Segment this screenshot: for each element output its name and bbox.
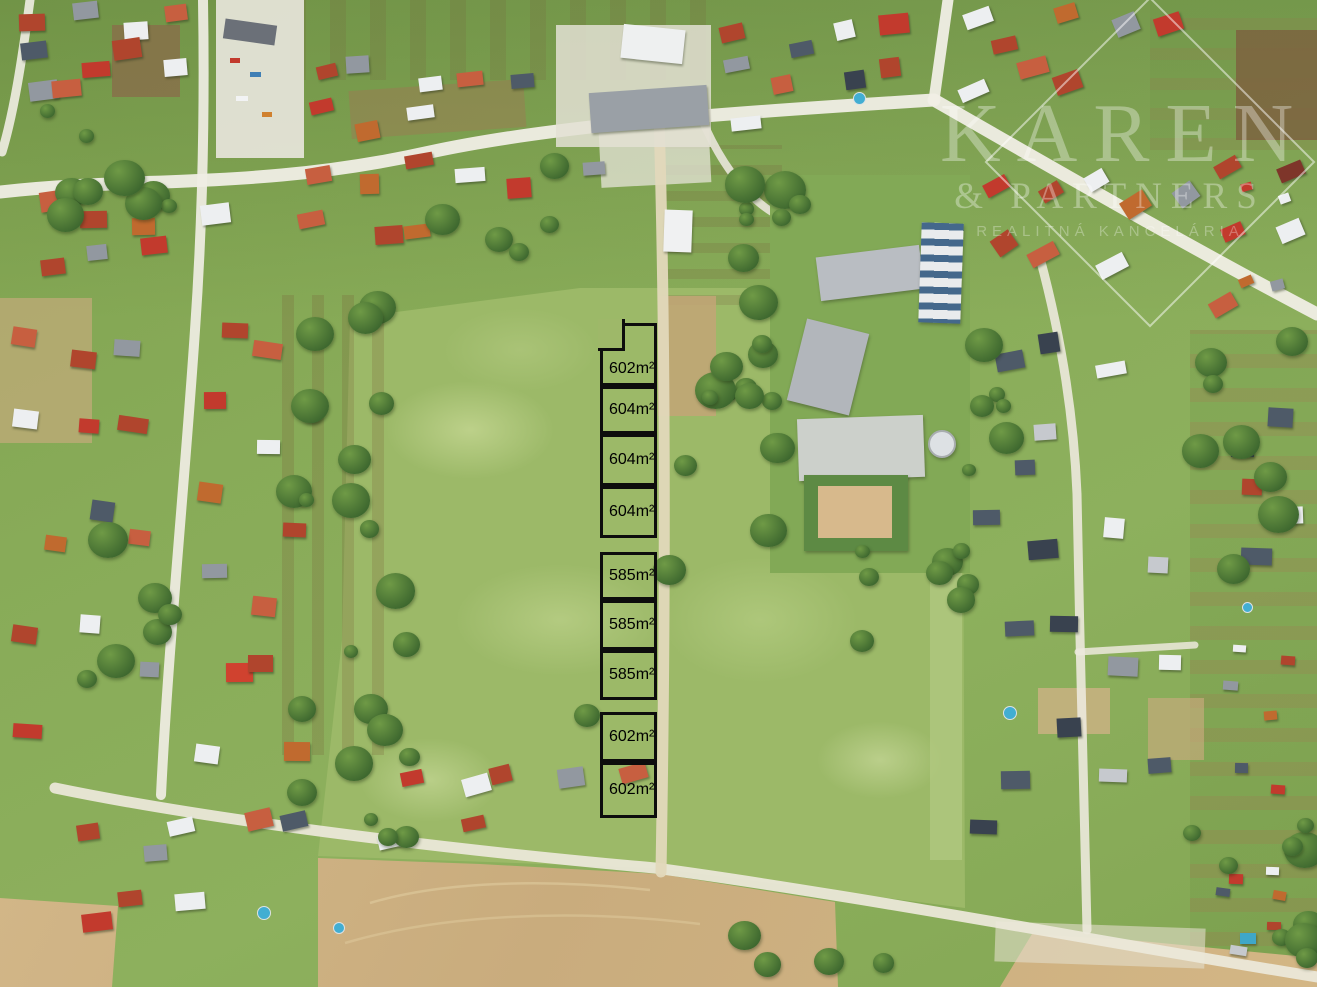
tree — [47, 198, 85, 232]
house-roof — [132, 217, 155, 234]
tree — [288, 696, 316, 722]
school-grounds — [770, 175, 970, 573]
plot-area-label: 585m² — [603, 617, 654, 633]
school-annex-building — [787, 319, 869, 416]
tree — [653, 555, 686, 585]
basketball-court — [797, 415, 925, 481]
tree — [425, 204, 460, 235]
tree — [873, 953, 895, 973]
plot-area-label: 602m² — [603, 782, 654, 798]
swimming-pool — [257, 906, 271, 920]
plot-area-label: 604m² — [603, 452, 654, 468]
tree — [855, 545, 870, 558]
tree — [702, 390, 718, 405]
farmyard-depot — [216, 0, 304, 158]
road-left-street — [161, 0, 204, 795]
tree — [1296, 948, 1317, 968]
house-roof — [1239, 933, 1255, 944]
tree — [369, 392, 394, 414]
tree — [393, 632, 420, 657]
tree — [996, 399, 1011, 413]
house-roof — [1233, 644, 1246, 651]
house-roof — [1229, 874, 1244, 885]
tree — [296, 317, 334, 351]
parked-trailer — [262, 112, 272, 117]
tree — [1276, 327, 1308, 356]
tree — [1282, 837, 1303, 856]
plot-outline: 602m² — [600, 712, 657, 762]
house-roof — [221, 322, 248, 338]
tree — [1254, 462, 1287, 492]
house-roof — [1147, 556, 1167, 573]
house-roof — [44, 535, 67, 553]
tree — [88, 522, 128, 558]
tree — [287, 779, 317, 806]
house-roof — [1050, 616, 1078, 632]
house-roof — [1159, 655, 1181, 671]
house-roof — [1264, 711, 1278, 721]
house-roof — [78, 418, 99, 433]
tree — [97, 644, 135, 678]
plot-area-label: 602m² — [603, 729, 654, 745]
house-roof — [1056, 717, 1081, 737]
school-main-building — [816, 245, 925, 301]
house-roof — [970, 820, 997, 834]
plot-outline: 604m² — [600, 434, 657, 486]
white-house-by-path — [663, 210, 692, 253]
house-roof — [140, 662, 160, 678]
house-roof — [202, 564, 227, 578]
tree — [540, 153, 569, 179]
house-roof — [973, 510, 1000, 526]
parked-boat — [250, 72, 261, 77]
house-roof — [511, 73, 535, 89]
tree — [1258, 496, 1299, 533]
parked-trailer — [230, 58, 240, 63]
plot-area-label: 585m² — [603, 568, 654, 584]
tree — [728, 921, 761, 951]
house-roof — [20, 41, 48, 61]
house-roof — [140, 236, 168, 256]
tree — [970, 395, 994, 417]
tree — [291, 389, 329, 424]
tree — [752, 335, 773, 353]
swimming-pool — [333, 922, 345, 934]
plot-outline: 602m² — [600, 762, 657, 818]
house-roof — [11, 326, 38, 348]
tree — [378, 828, 398, 846]
house-roof — [346, 55, 370, 73]
house-roof — [112, 37, 142, 61]
house-roof — [128, 529, 151, 547]
tree — [1223, 425, 1260, 459]
house-roof — [82, 61, 111, 78]
tree — [953, 543, 970, 559]
depot-building — [223, 18, 277, 45]
house-roof — [1268, 407, 1294, 428]
house-roof — [13, 723, 43, 739]
tree — [332, 483, 370, 517]
plot-area-label: 604m² — [603, 402, 654, 418]
house-roof — [51, 79, 82, 98]
tennis-court-surface — [818, 486, 892, 538]
plot-outline-notch — [598, 319, 625, 351]
solar-roof-building — [918, 222, 963, 323]
house-roof — [1033, 423, 1056, 440]
farm-buildings-yard — [556, 25, 711, 147]
house-roof — [454, 167, 485, 183]
house-roof — [1027, 538, 1059, 559]
tree — [1195, 348, 1227, 377]
house-roof — [583, 161, 606, 176]
house-roof — [374, 225, 404, 245]
tree — [750, 514, 786, 547]
tree — [77, 670, 97, 688]
house-roof — [1098, 769, 1127, 783]
house-roof — [204, 392, 226, 409]
house-roof — [90, 499, 115, 522]
house-roof — [200, 202, 231, 225]
house-roof — [456, 70, 484, 87]
plot-outline: 604m² — [600, 386, 657, 434]
house-roof — [18, 13, 45, 31]
road-development-branch — [1078, 645, 1195, 652]
house-roof — [284, 742, 310, 761]
house-roof — [70, 350, 97, 370]
tree — [962, 464, 976, 477]
house-roof — [1271, 784, 1285, 794]
tree — [754, 952, 781, 977]
house-roof — [1223, 680, 1238, 690]
house-roof — [506, 177, 531, 198]
house-roof — [1004, 620, 1034, 636]
house-roof — [143, 844, 167, 862]
house-roof — [11, 624, 38, 644]
house-roof — [1107, 656, 1138, 677]
house-roof — [113, 339, 140, 357]
house-roof — [164, 4, 188, 23]
house-roof — [1001, 771, 1030, 789]
house-roof — [72, 0, 99, 20]
tennis-court — [804, 475, 908, 551]
house-roof — [878, 13, 910, 36]
tree — [158, 604, 182, 625]
barn-building — [589, 85, 710, 133]
swimming-pool — [853, 92, 866, 105]
house-roof — [843, 70, 865, 90]
house-roof — [1235, 763, 1249, 773]
house-roof — [163, 58, 188, 77]
house-roof — [879, 56, 901, 78]
tree — [299, 493, 314, 507]
tree — [338, 445, 370, 474]
house-roof — [1148, 757, 1172, 774]
house-roof — [251, 595, 277, 616]
tree — [725, 166, 765, 202]
plot-area-label: 585m² — [603, 667, 654, 683]
house-roof — [1280, 655, 1295, 665]
road-top-branch — [934, 0, 948, 100]
swimming-pool — [1003, 706, 1017, 720]
field-contour-1 — [370, 883, 650, 903]
house-roof — [79, 614, 100, 633]
house-roof — [12, 409, 39, 430]
field-contour-2 — [345, 916, 700, 943]
plot-outline: 585m² — [600, 650, 657, 700]
house-roof — [194, 744, 220, 765]
house-roof — [257, 440, 280, 454]
plot-outline: 585m² — [600, 552, 657, 600]
road-development-street — [1040, 258, 1087, 930]
house-roof — [557, 766, 585, 788]
tree — [1297, 818, 1314, 833]
tree — [789, 195, 811, 215]
tree — [40, 104, 55, 118]
tree — [399, 748, 419, 766]
round-water-tank — [928, 430, 956, 458]
tree — [364, 813, 378, 826]
house-roof — [1014, 460, 1034, 475]
tree — [710, 352, 743, 382]
tree — [376, 573, 415, 609]
tree — [947, 587, 975, 613]
tree — [574, 704, 600, 728]
tree — [1183, 825, 1201, 841]
parked-van — [236, 96, 248, 101]
house-roof — [418, 76, 442, 93]
house-roof — [360, 174, 380, 194]
house-roof — [1103, 517, 1125, 539]
tree — [540, 216, 559, 233]
tree — [335, 746, 374, 781]
house-roof — [76, 822, 100, 841]
tree — [739, 285, 778, 320]
house-roof — [87, 244, 108, 261]
house-roof — [118, 889, 143, 907]
house-roof — [248, 655, 273, 672]
tree — [348, 302, 383, 334]
tree — [367, 714, 403, 747]
warehouse-building — [620, 24, 685, 64]
tree — [1182, 434, 1219, 468]
tree — [394, 826, 419, 848]
swimming-pool — [1242, 602, 1253, 613]
house-roof — [1037, 332, 1060, 355]
tree — [965, 328, 1003, 362]
plot-area-label: 602m² — [603, 361, 654, 377]
aerial-photo-canvas: 602m²604m²604m²604m²585m²585m²585m²602m²… — [0, 0, 1317, 987]
tree — [926, 561, 953, 585]
plot-outline: 585m² — [600, 600, 657, 650]
tree — [760, 433, 794, 464]
plot-area-label: 604m² — [603, 504, 654, 520]
tree — [674, 455, 697, 476]
plot-outline: 604m² — [600, 486, 657, 538]
house-roof — [174, 891, 205, 911]
house-roof — [197, 481, 223, 504]
house-roof — [283, 522, 306, 537]
tree — [735, 383, 765, 410]
tree — [344, 645, 358, 658]
house-roof — [1265, 866, 1279, 875]
